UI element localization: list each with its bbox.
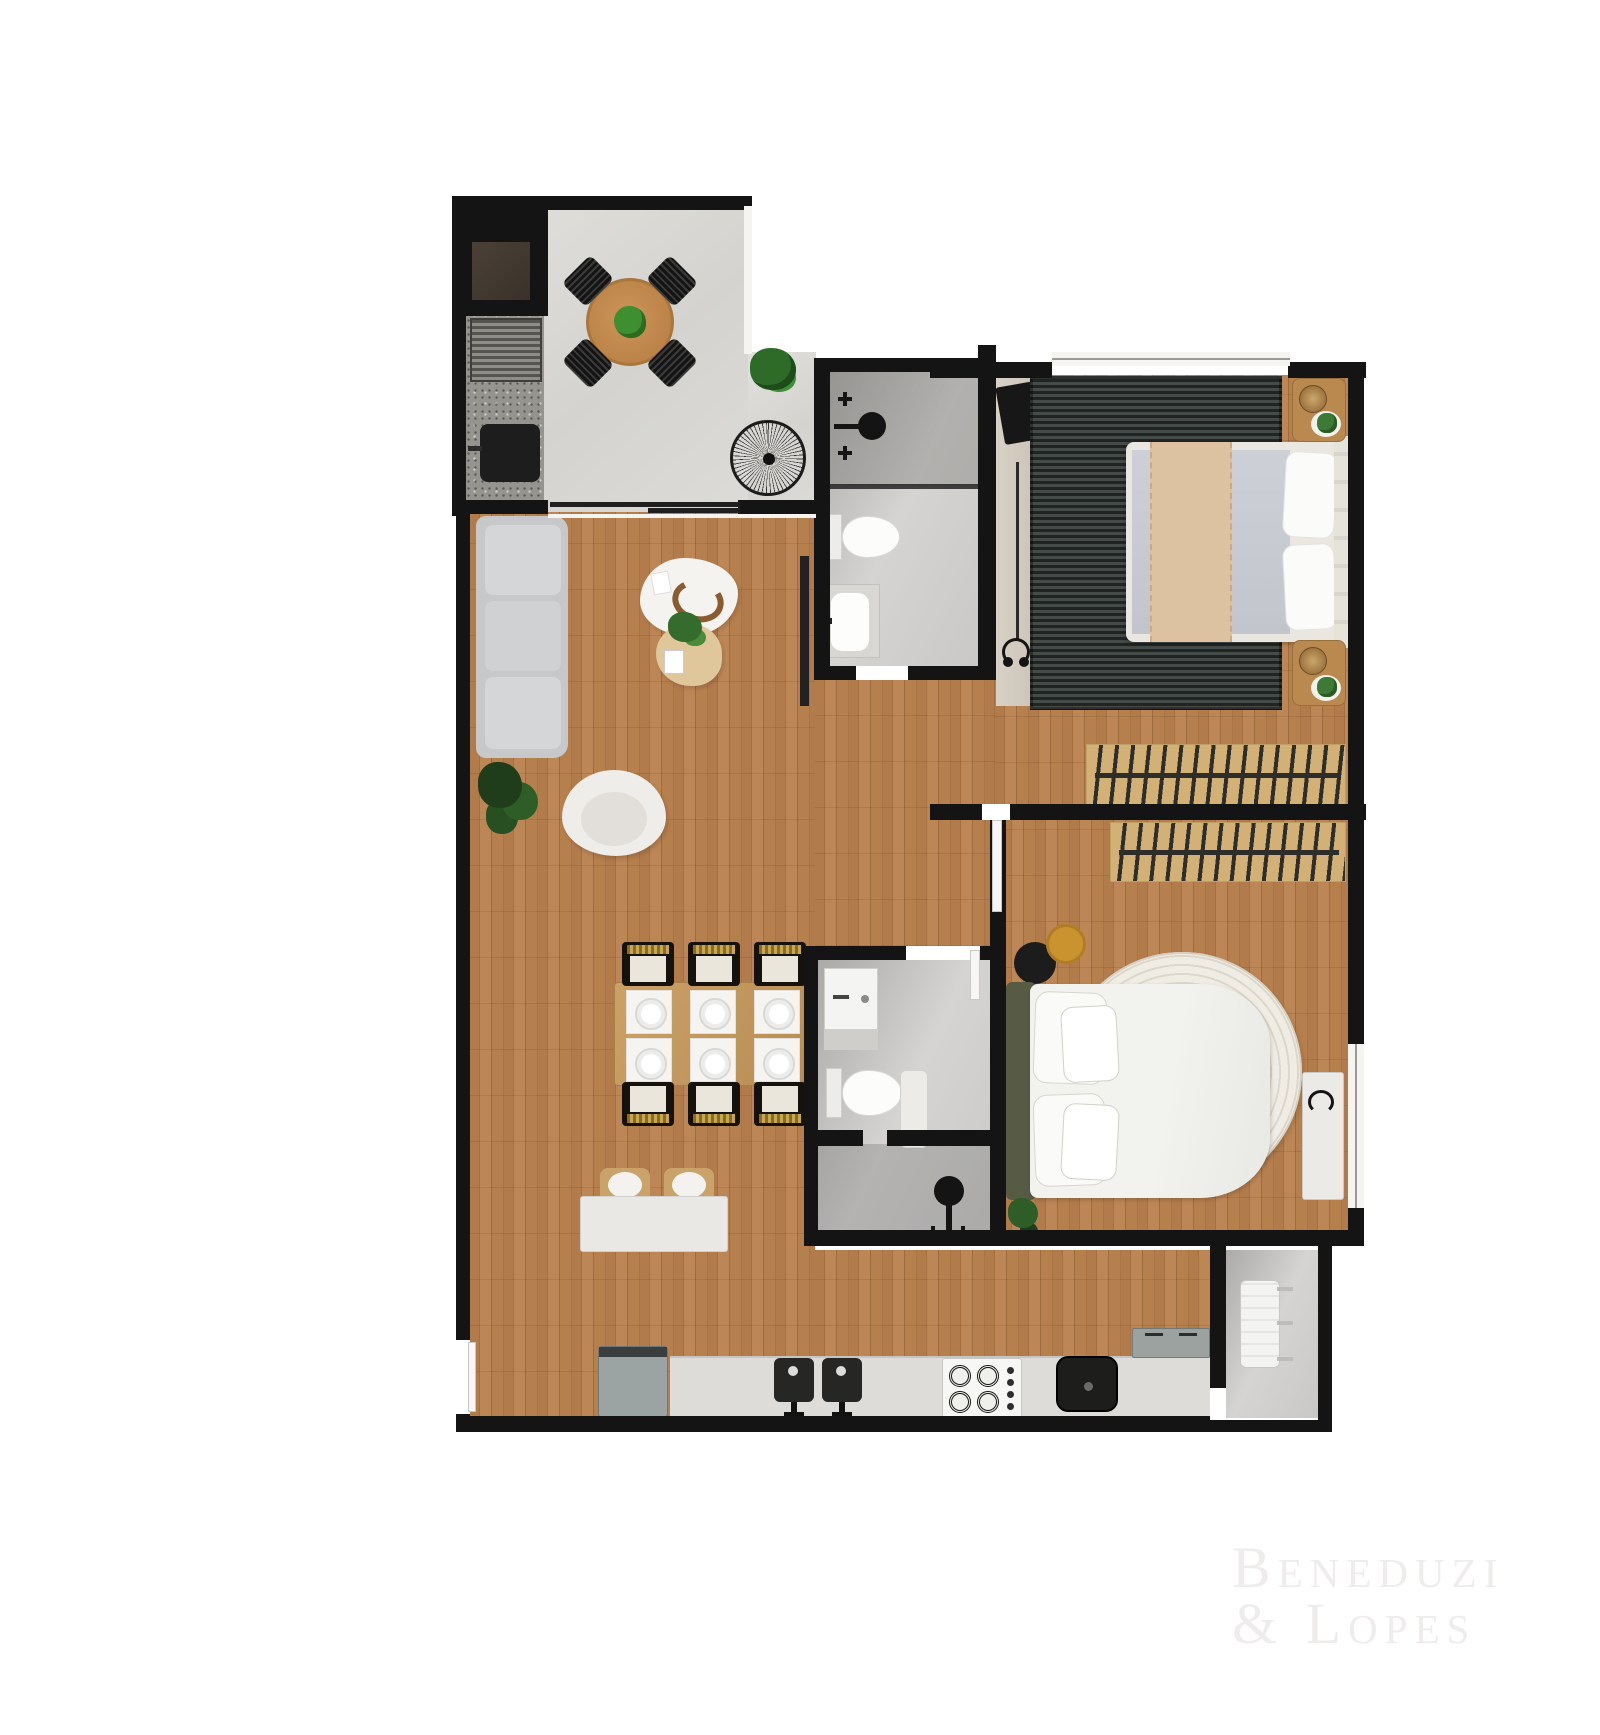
floor-plan-page: Beneduzi & Lopes xyxy=(0,0,1600,1735)
chair-cushion xyxy=(630,1086,666,1112)
bathroom1-shower-zone xyxy=(820,360,978,486)
watermark-logo: Beneduzi & Lopes xyxy=(1232,1540,1504,1652)
chair-woven-top xyxy=(627,1114,669,1123)
sideboard-handle xyxy=(1145,1333,1163,1336)
outdoor-sink-faucet xyxy=(468,446,482,451)
stool-cushion xyxy=(672,1172,706,1198)
vanity2-knob xyxy=(861,995,869,1003)
sofa-cushion xyxy=(485,601,561,671)
wall-bedrooms-divider-stub xyxy=(930,804,982,820)
bed2-pillow-small xyxy=(1060,1005,1120,1084)
stool-cushion xyxy=(608,1172,642,1198)
decor-card xyxy=(650,571,672,596)
sink-bowl xyxy=(822,1358,862,1402)
wall-bathroom2-divider-b xyxy=(887,1130,995,1146)
stove-knob xyxy=(1007,1379,1014,1386)
dining-chair xyxy=(622,1082,674,1126)
burner xyxy=(977,1391,999,1413)
chair-woven-top xyxy=(759,945,801,954)
outdoor-sink xyxy=(480,424,540,482)
table-centerpiece-plant xyxy=(614,306,646,338)
wall-bathroom2-bottom xyxy=(804,1230,1004,1246)
nightstand-tray xyxy=(1299,385,1327,413)
side-table-card xyxy=(664,650,684,674)
gas-cooktop xyxy=(942,1358,1022,1418)
armchair xyxy=(562,770,666,856)
plate xyxy=(635,1048,667,1080)
mustard-side-table xyxy=(1046,924,1086,964)
tv-panel xyxy=(800,556,809,706)
wall-service-right xyxy=(1318,1246,1332,1432)
bathroom1-door-opening xyxy=(856,666,908,680)
dining-chair xyxy=(688,1082,740,1126)
dining-chair xyxy=(688,942,740,986)
wall-bathroom2-divider-a xyxy=(818,1130,863,1146)
chair-cushion xyxy=(762,1086,798,1112)
wall-bedrooms-divider xyxy=(1010,804,1366,820)
plate xyxy=(699,998,731,1030)
side-table xyxy=(656,624,722,686)
bed1-pillow xyxy=(1282,543,1338,632)
chair-cushion xyxy=(630,956,666,982)
vanity1-basin xyxy=(830,592,870,652)
plate xyxy=(635,998,667,1030)
chair-woven-top xyxy=(759,1114,801,1123)
chair-cushion xyxy=(696,1086,732,1112)
bedroom1-closet-rack xyxy=(1086,744,1346,806)
vanity2-cabinet xyxy=(824,968,878,1030)
bed2-pillow-small xyxy=(1060,1103,1120,1182)
bedroom2-door-opening xyxy=(982,804,1010,820)
window-frame-line xyxy=(1052,358,1290,360)
nightstand-top xyxy=(1292,378,1346,442)
shower2-stem xyxy=(946,1204,952,1230)
wall-bedroom1-right xyxy=(1348,362,1364,820)
sofa-cushion xyxy=(485,677,561,749)
shower2-handle xyxy=(926,1226,940,1240)
balcony-sill xyxy=(744,206,752,354)
wall-bedroom2-bottom xyxy=(990,1230,1364,1246)
sink-bowl xyxy=(774,1358,814,1402)
plate xyxy=(763,1048,795,1080)
sink-drain xyxy=(836,1366,846,1376)
wall-bottom xyxy=(456,1416,1222,1432)
nightstand-tray xyxy=(1299,647,1327,675)
living-divider-sill xyxy=(548,514,816,518)
desk-pen xyxy=(1016,462,1019,640)
window-frame-line xyxy=(1355,1044,1357,1208)
shower2-handle xyxy=(956,1226,970,1240)
stove-knob xyxy=(1007,1391,1014,1398)
bathroom2-door-leaf xyxy=(970,950,980,1000)
armchair-cushion xyxy=(581,792,647,846)
wire-decor-chair xyxy=(730,420,806,496)
vanity2-counter-shadow xyxy=(824,1030,878,1050)
drying-rack xyxy=(1240,1280,1280,1368)
placemat-plate xyxy=(690,990,736,1034)
refrigerator-top xyxy=(599,1347,667,1357)
balcony-potted-plant xyxy=(750,348,796,390)
chair-cushion xyxy=(696,956,732,982)
breakfast-bar xyxy=(580,1196,728,1252)
bed1-pillow xyxy=(1282,451,1338,540)
rack-leg xyxy=(1277,1287,1293,1291)
bed1-throw xyxy=(1150,442,1232,642)
headphone-cup xyxy=(1003,657,1013,667)
burner xyxy=(977,1365,999,1387)
bedroom2-window xyxy=(1348,1044,1364,1208)
dining-chair xyxy=(754,1082,806,1126)
wall-balcony-divider-left xyxy=(456,500,548,514)
wall-balcony-divider-right xyxy=(738,500,818,514)
headphone-cup xyxy=(1019,657,1029,667)
wall-bathroom1-right xyxy=(978,345,996,680)
bedroom2-floor-plant xyxy=(1008,1198,1038,1228)
utility-shaft-interior xyxy=(472,242,530,300)
sofa xyxy=(476,516,568,758)
sink-drain xyxy=(788,1366,798,1376)
apartment-floor-plan xyxy=(0,0,1600,1735)
placemat-plate xyxy=(690,1038,736,1082)
bathroom1-glass-partition xyxy=(828,484,978,489)
sofa-cushion xyxy=(485,525,561,595)
prep-sink-drain xyxy=(1084,1382,1093,1391)
chair-woven-top xyxy=(693,1114,735,1123)
sliding-door-panel xyxy=(648,508,740,513)
watermark-line1: Beneduzi xyxy=(1232,1540,1504,1596)
watermark-line2: & Lopes xyxy=(1232,1596,1504,1652)
stove-knob xyxy=(1007,1367,1014,1374)
dining-chair xyxy=(622,942,674,986)
nightstand-plant xyxy=(1317,677,1337,697)
burner xyxy=(949,1365,971,1387)
shower1-handle xyxy=(838,446,852,460)
shower1-head xyxy=(858,412,886,440)
nightstand-bottom xyxy=(1292,640,1346,706)
wire-chair-hub xyxy=(763,453,775,465)
wall-left-main xyxy=(456,514,470,1430)
living-floor-plant xyxy=(478,762,522,808)
headphones xyxy=(1002,638,1030,666)
wall-service-bottom xyxy=(1210,1420,1332,1432)
sideboard-handle xyxy=(1179,1333,1197,1336)
plate xyxy=(763,998,795,1030)
placemat-plate xyxy=(626,990,672,1034)
closet-rail xyxy=(1119,850,1339,855)
plate xyxy=(699,1048,731,1080)
chair-cushion xyxy=(762,956,798,982)
bedroom1-window xyxy=(1052,352,1290,366)
entrance-door-leaf xyxy=(468,1342,476,1412)
wall-bedroom1-top-left xyxy=(930,362,1052,378)
sliding-door-panel xyxy=(550,502,740,507)
burner xyxy=(949,1391,971,1413)
bedroom2-door-leaf xyxy=(992,820,1002,912)
nightstand-plant xyxy=(1317,413,1337,433)
rack-leg xyxy=(1277,1357,1293,1361)
closet-rail xyxy=(1095,773,1339,778)
chair-woven-top xyxy=(627,945,669,954)
toilet2-tank xyxy=(826,1068,842,1118)
barbecue-grill xyxy=(470,318,542,382)
wall-bathroom2-left xyxy=(804,946,818,1244)
dining-chair xyxy=(754,942,806,986)
bathroom2-door-opening xyxy=(906,946,980,960)
chair-woven-top xyxy=(693,945,735,954)
vanity2-handle xyxy=(833,995,849,999)
shower1-handle xyxy=(838,392,852,406)
wall-bathroom1-left xyxy=(814,358,830,680)
placemat-plate xyxy=(626,1038,672,1082)
stove-knob xyxy=(1007,1403,1014,1410)
placemat-plate xyxy=(754,990,800,1034)
double-sink xyxy=(774,1358,862,1414)
rack-leg xyxy=(1277,1321,1293,1325)
shower2-head xyxy=(934,1176,964,1206)
bedroom2-closet-rack xyxy=(1110,822,1346,882)
refrigerator xyxy=(598,1346,668,1418)
gray-sideboard xyxy=(1132,1328,1210,1358)
placemat-plate xyxy=(754,1038,800,1082)
wall-left-upper xyxy=(452,196,466,516)
shower1-arm xyxy=(834,424,860,429)
kitchen-counter xyxy=(670,1356,1212,1416)
black-prep-sink xyxy=(1056,1356,1118,1412)
side-table-plant xyxy=(668,612,702,642)
bench-headphones xyxy=(1308,1090,1334,1114)
